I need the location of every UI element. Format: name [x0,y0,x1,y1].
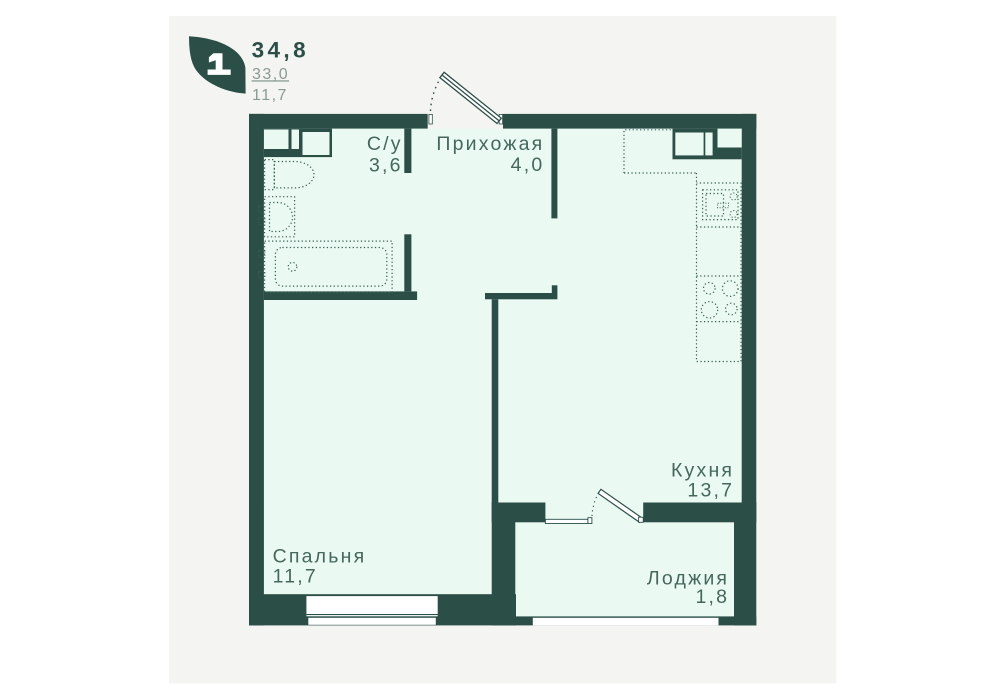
svg-text:11,7: 11,7 [252,87,288,104]
svg-text:Кухня: Кухня [671,460,734,482]
svg-text:Прихожая: Прихожая [436,133,544,155]
svg-text:11,7: 11,7 [273,565,318,587]
svg-text:1,8: 1,8 [695,586,729,608]
svg-text:С/у: С/у [367,133,403,155]
svg-text:Спальня: Спальня [273,546,367,568]
svg-text:13,7: 13,7 [687,480,734,502]
svg-text:3,6: 3,6 [369,154,403,176]
svg-text:34,8: 34,8 [252,37,309,62]
svg-text:4,0: 4,0 [511,154,545,176]
